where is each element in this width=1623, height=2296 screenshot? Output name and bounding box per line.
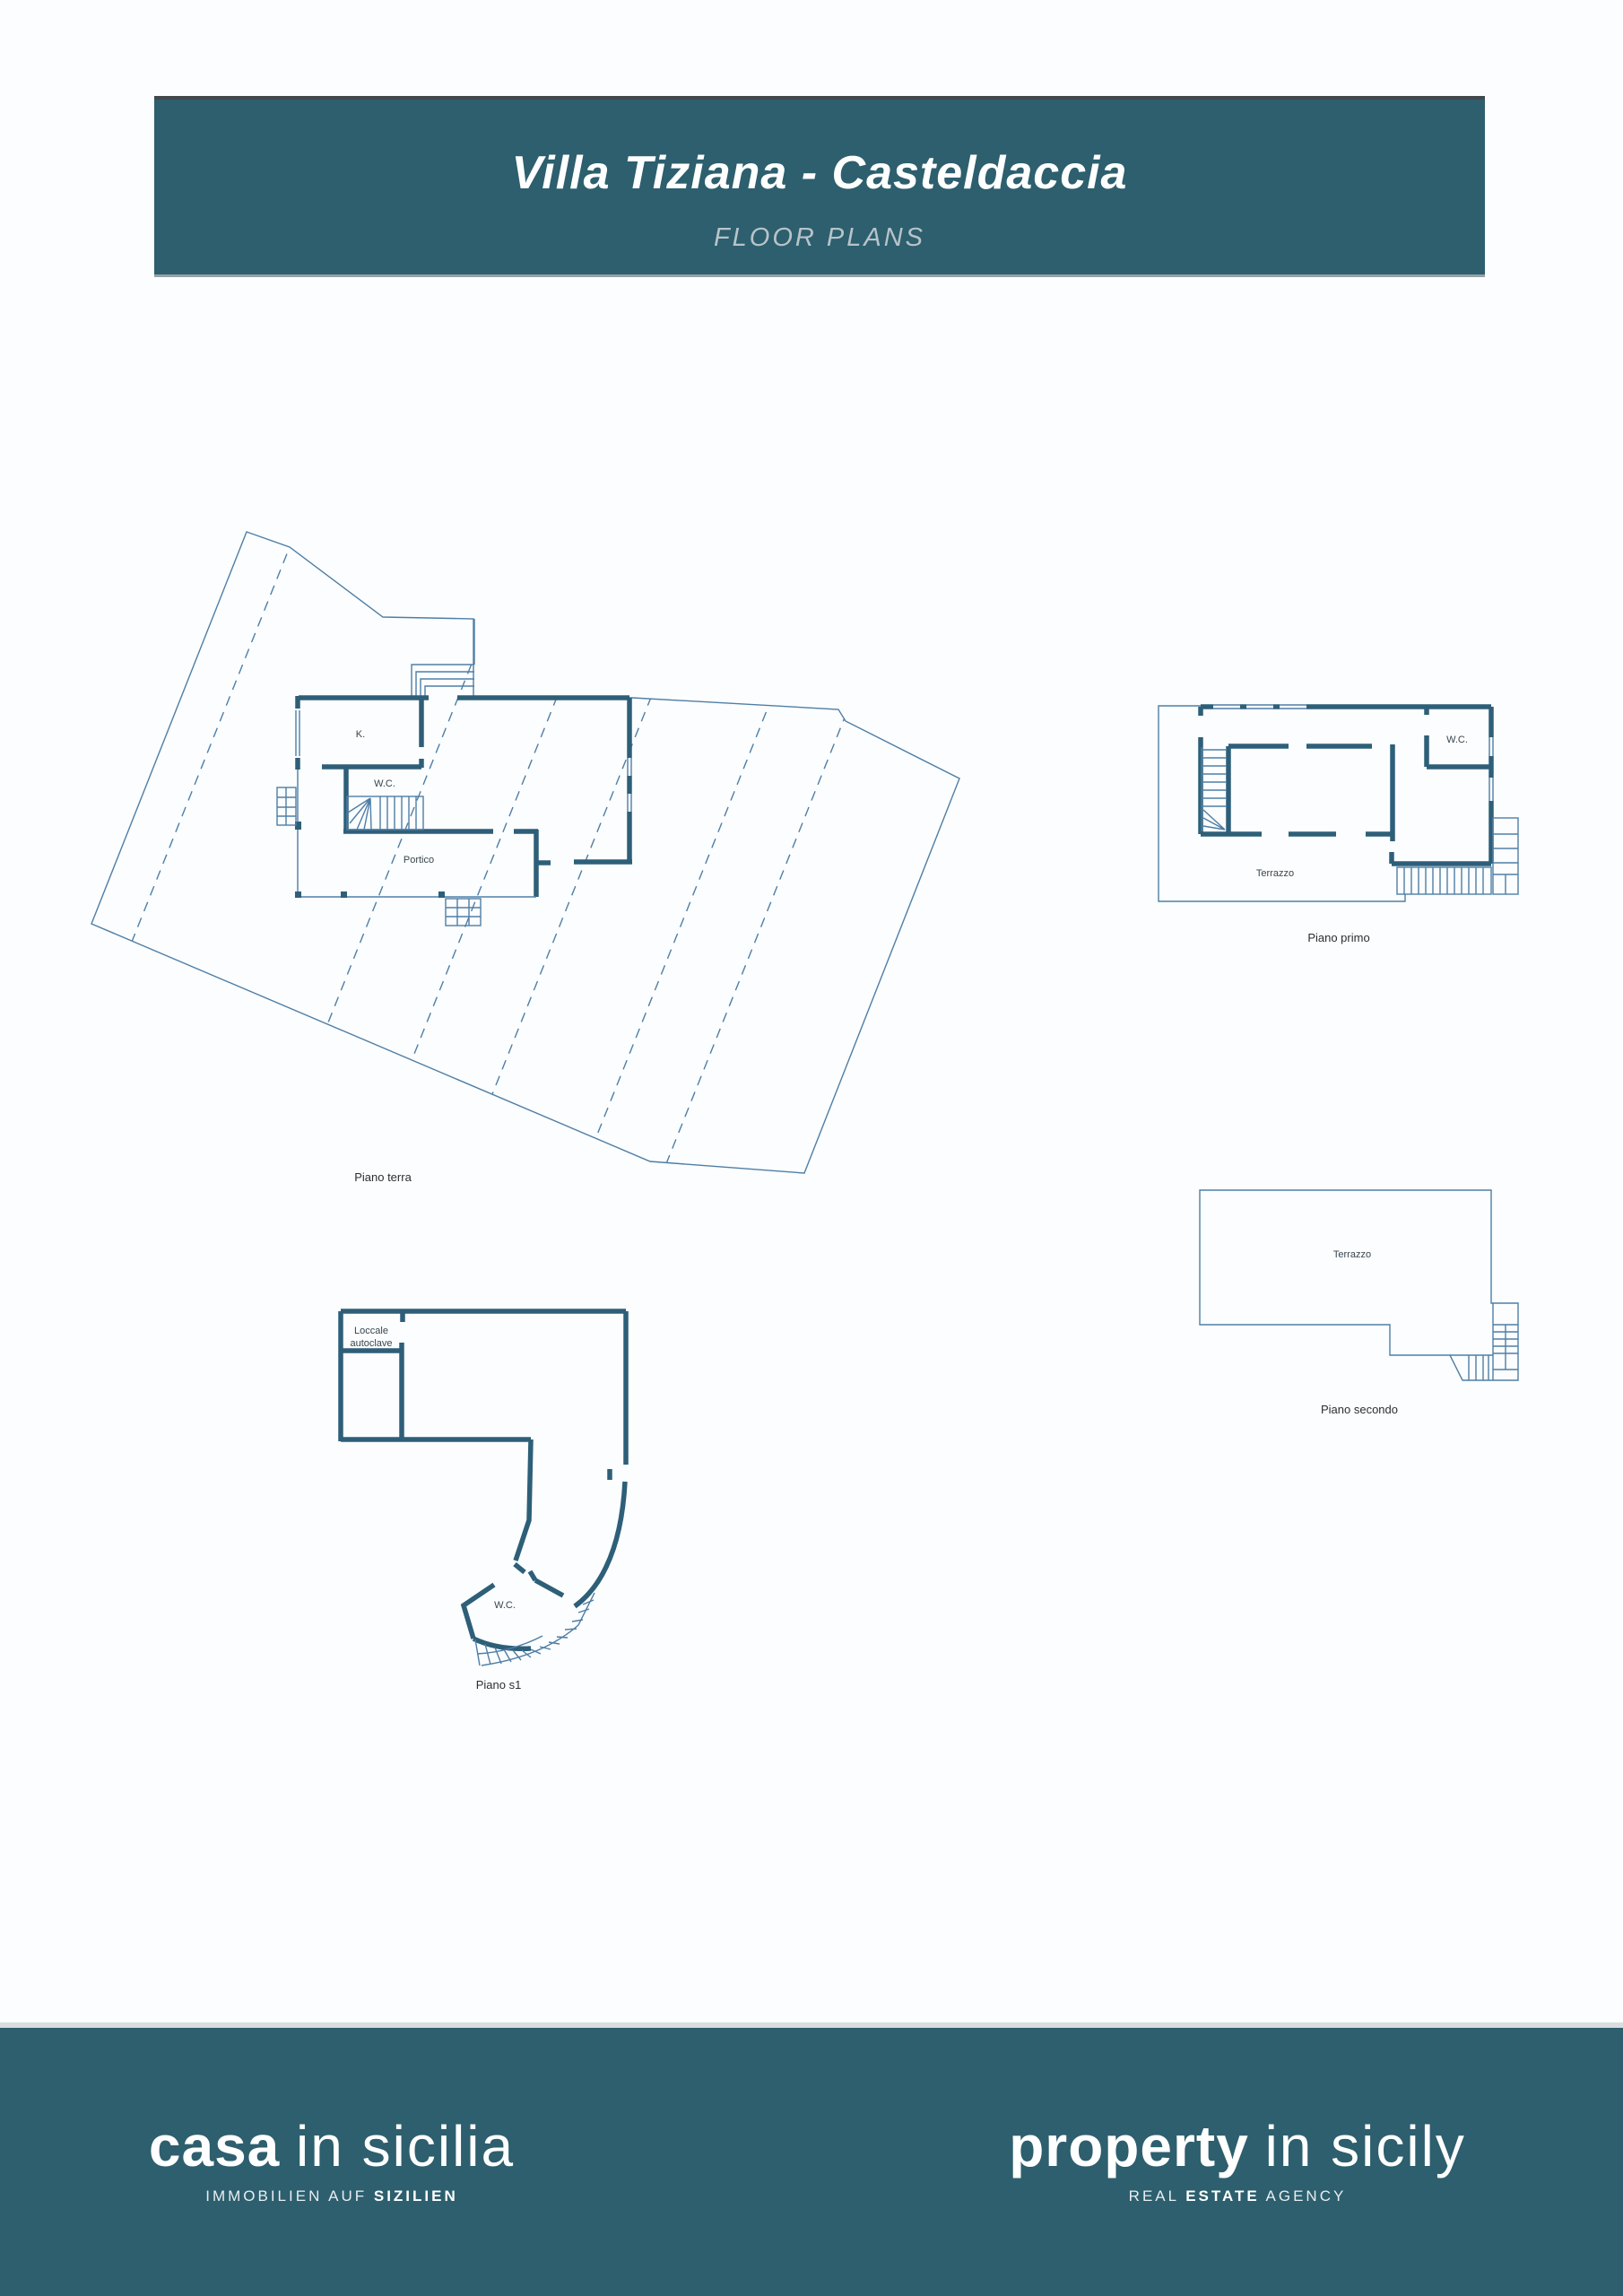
property-tagline-pre: REAL xyxy=(1129,2187,1186,2205)
property-tagline-post: AGENCY xyxy=(1260,2187,1347,2205)
plan-caption-piano-primo: Piano primo xyxy=(1307,931,1369,944)
room-label-wc: W.C. xyxy=(494,1600,516,1611)
staircase xyxy=(1202,747,1227,831)
casa-logo-light: in sicilia xyxy=(296,2114,515,2179)
external-stairs xyxy=(1450,1303,1518,1380)
external-stairs xyxy=(1397,818,1518,894)
room-label-terrazzo: Terrazzo xyxy=(1333,1249,1371,1260)
plan-caption-piano-s1: Piano s1 xyxy=(476,1678,522,1692)
floor-plan-piano-terra: K. W.C. Portico Piano terra xyxy=(85,498,995,1215)
property-tagline-bold: ESTATE xyxy=(1185,2187,1260,2205)
floor-plan-piano-secondo: Terrazzo Piano secondo xyxy=(1184,1175,1542,1431)
window-glyphs xyxy=(1213,705,1493,801)
plan-caption-piano-terra: Piano terra xyxy=(354,1170,412,1184)
room-label-kitchen: K. xyxy=(356,729,365,740)
page-subtitle: FLOOR PLANS xyxy=(154,223,1485,253)
room-label-wc: W.C. xyxy=(1446,735,1468,745)
floor-plan-piano-primo: W.C. Terrazzo Piano primo xyxy=(1143,691,1547,960)
room-label-portico: Portico xyxy=(404,855,434,865)
room-label-autoclave-line1: Loccale xyxy=(354,1326,388,1336)
chimney-detail xyxy=(412,619,474,698)
walls xyxy=(341,1311,626,1648)
casa-in-sicilia-logo: casa in sicilia IMMOBILIEN AUF SIZILIEN xyxy=(72,2118,592,2205)
footer-band: casa in sicilia IMMOBILIEN AUF SIZILIEN … xyxy=(0,2028,1623,2296)
property-in-sicily-logo: property in sicily REAL ESTATE AGENCY xyxy=(942,2118,1533,2205)
page-title: Villa Tiziana - Casteldaccia xyxy=(154,146,1485,200)
header-band: Villa Tiziana - Casteldaccia FLOOR PLANS xyxy=(154,96,1485,277)
plot-boundary xyxy=(91,532,959,1173)
casa-tagline-light: IMMOBILIEN AUF xyxy=(205,2187,374,2205)
walls xyxy=(1201,707,1491,864)
room-label-autoclave-line2: autoclave xyxy=(350,1338,392,1349)
room-label-wc: W.C. xyxy=(374,778,395,789)
casa-logo-bold: casa xyxy=(149,2114,280,2179)
terrace-outline xyxy=(1200,1190,1518,1380)
room-label-terrazzo: Terrazzo xyxy=(1256,868,1294,879)
plan-caption-piano-secondo: Piano secondo xyxy=(1321,1403,1398,1416)
property-logo-light: in sicily xyxy=(1265,2114,1466,2179)
floor-plan-piano-s1: Loccale autoclave W.C. Piano s1 xyxy=(309,1291,659,1713)
property-logo-bold: property xyxy=(1009,2114,1249,2179)
left-steps xyxy=(277,787,296,825)
casa-tagline-bold: SIZILIEN xyxy=(374,2187,458,2205)
